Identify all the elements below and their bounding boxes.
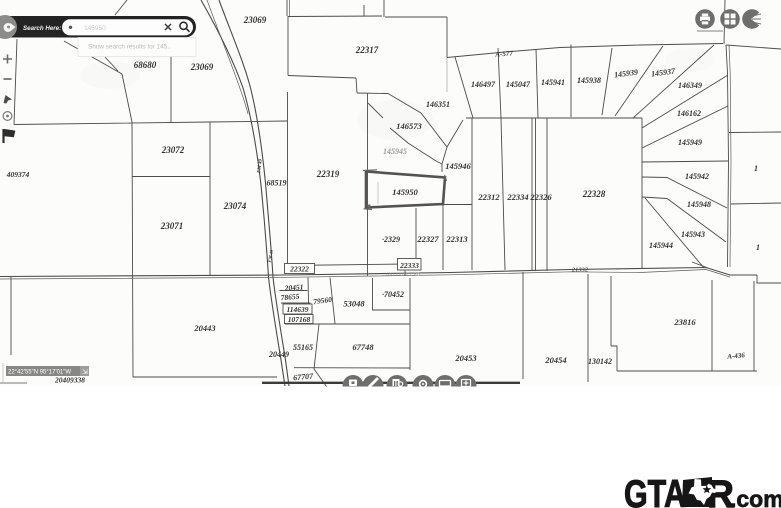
svg-text:GTA: GTA	[624, 473, 686, 508]
svg-text:145950: 145950	[84, 25, 106, 32]
svg-text:Show search results for 145..: Show search results for 145..	[88, 44, 171, 51]
svg-text:22°42'55"N 95°17'01"W: 22°42'55"N 95°17'01"W	[8, 370, 71, 376]
svg-text:⇲: ⇲	[82, 368, 88, 376]
svg-text:.com: .com	[730, 486, 781, 508]
svg-text:Search Here:: Search Here:	[23, 25, 61, 32]
